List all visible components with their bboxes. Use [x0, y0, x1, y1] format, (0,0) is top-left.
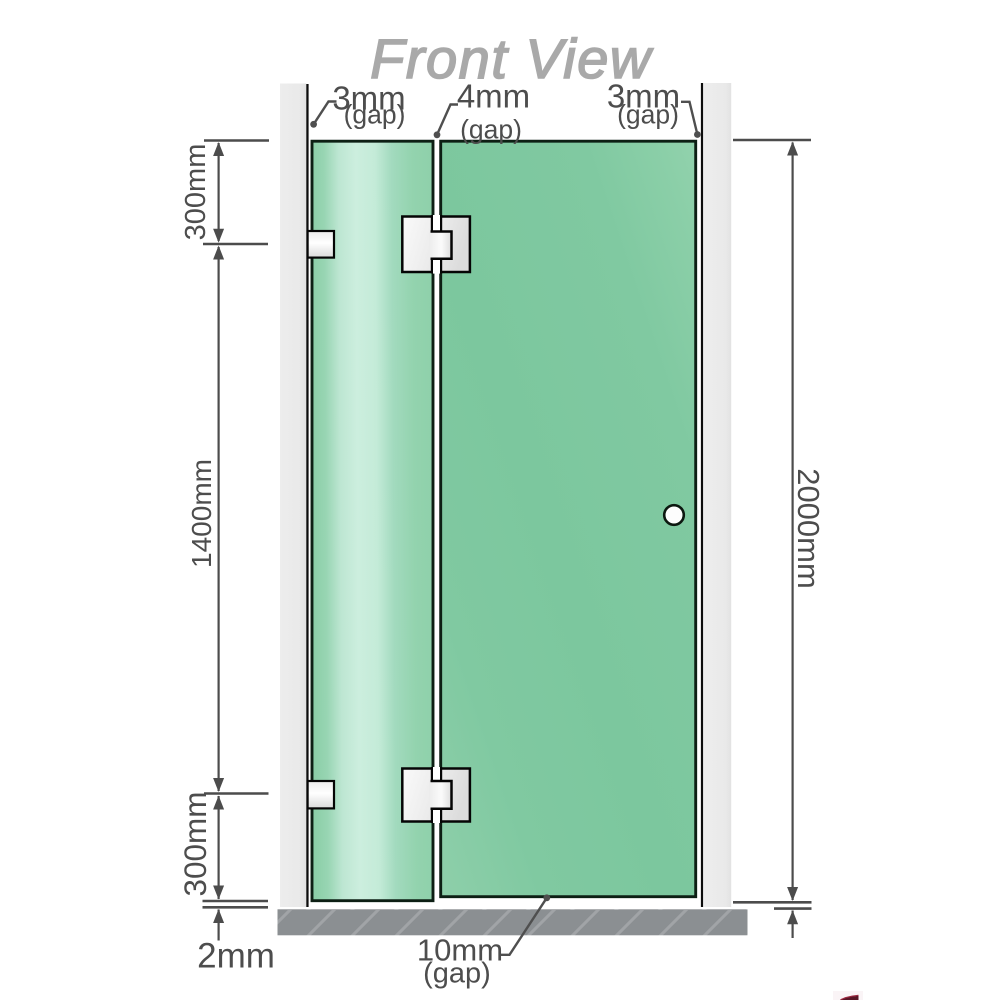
svg-text:2000mm: 2000mm: [791, 468, 826, 589]
svg-text:4mm: 4mm: [457, 78, 530, 115]
svg-text:300mm: 300mm: [177, 791, 213, 896]
svg-text:(gap): (gap): [460, 115, 522, 145]
svg-text:(gap): (gap): [423, 958, 491, 990]
svg-text:300mm: 300mm: [180, 144, 212, 241]
svg-text:(gap): (gap): [344, 100, 406, 130]
svg-text:1400mm: 1400mm: [186, 459, 217, 568]
svg-text:(gap): (gap): [617, 100, 679, 130]
svg-text:2mm: 2mm: [197, 937, 275, 976]
